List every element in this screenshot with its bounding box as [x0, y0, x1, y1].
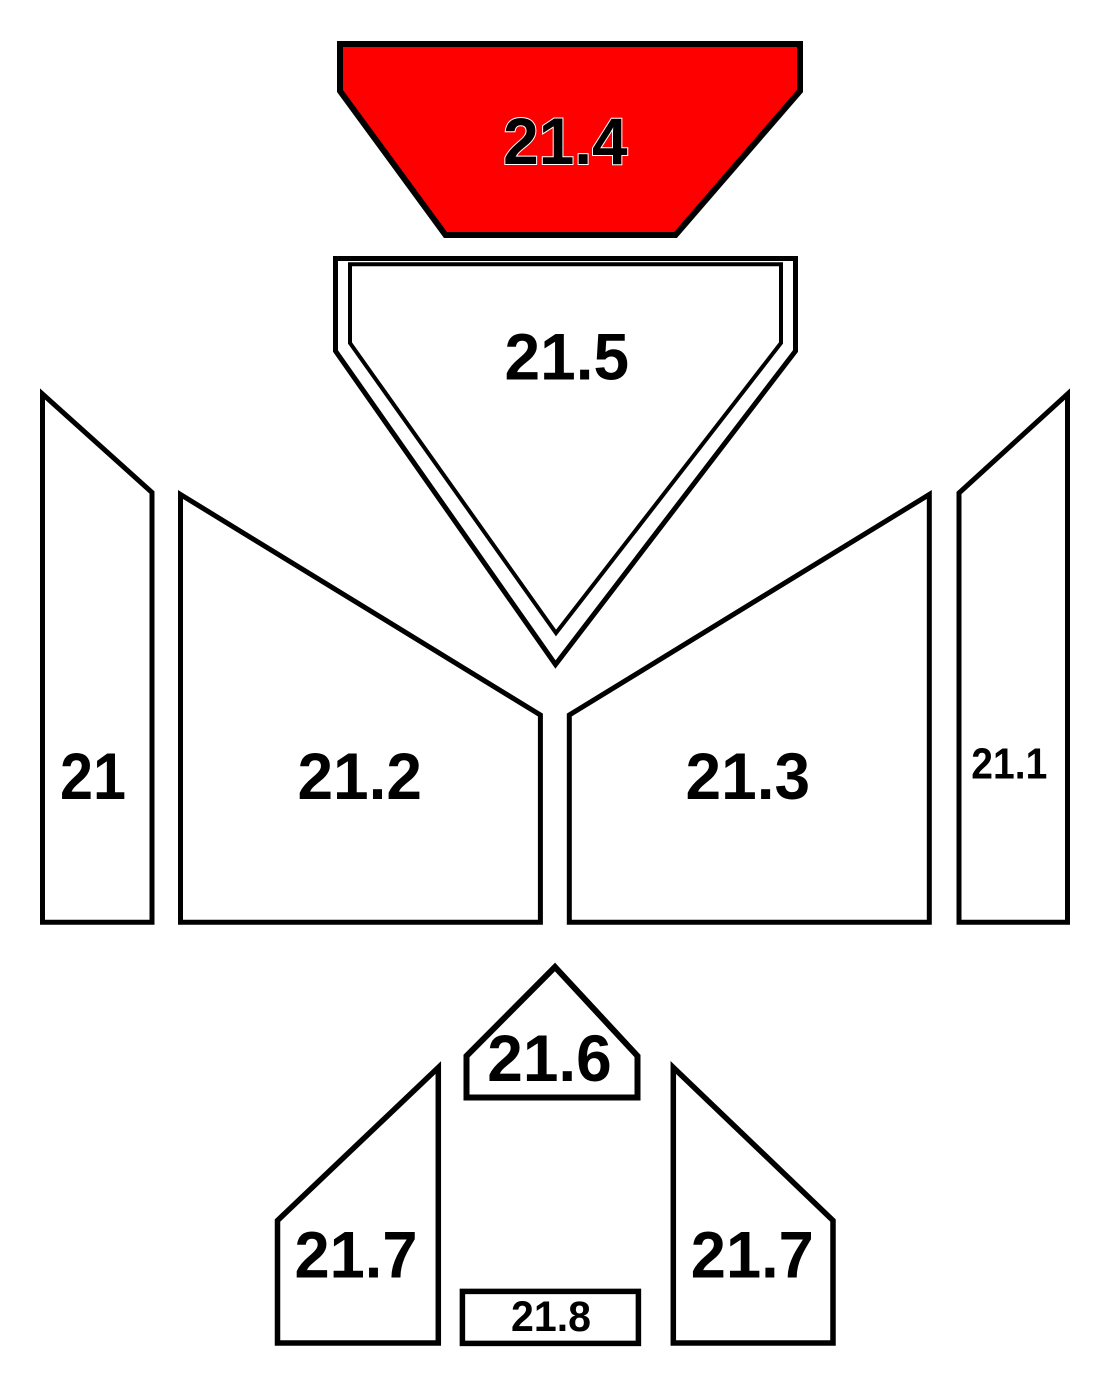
svg-text:21.6: 21.6 [487, 1021, 612, 1095]
svg-text:21.7: 21.7 [295, 1217, 418, 1291]
svg-text:21.5: 21.5 [505, 320, 630, 394]
svg-text:21.1: 21.1 [971, 739, 1047, 788]
svg-text:21: 21 [60, 739, 126, 813]
svg-text:21.7: 21.7 [691, 1217, 814, 1291]
svg-text:21.2: 21.2 [297, 739, 422, 813]
svg-text:21.3: 21.3 [686, 739, 811, 813]
svg-text:21.8: 21.8 [511, 1293, 591, 1341]
svg-text:21.4: 21.4 [503, 104, 628, 178]
